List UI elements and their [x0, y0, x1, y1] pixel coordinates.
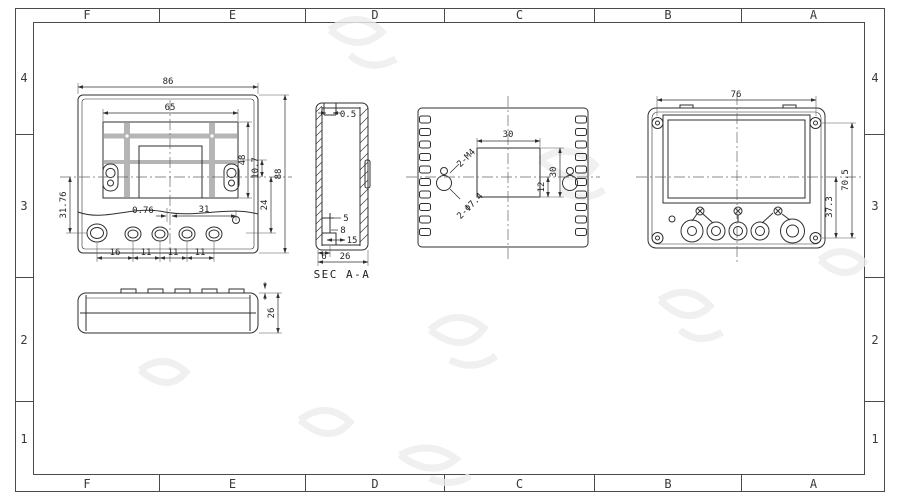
watermark: [140, 19, 864, 482]
dim-rear-screw-span-h: 70.5: [841, 169, 851, 191]
dim-front-gap-2: 11: [168, 248, 179, 258]
section-title: SEC A-A: [314, 268, 371, 281]
dim-section-lip: 0.5: [340, 110, 356, 120]
front-view: 86 65 48 10.7 88 24 31.76 0.76 31 16 11 …: [59, 77, 292, 262]
dim-front-center-offset: 10.7: [251, 157, 261, 179]
drawing-canvas: 86 65 48 10.7 88 24 31.76 0.76 31 16 11 …: [0, 0, 900, 500]
dim-rear-screw-span-w: 76: [731, 90, 742, 100]
dim-bottom-depth: 26: [267, 308, 277, 319]
dim-section-foot: 6: [321, 252, 326, 262]
dim-front-button-offset: 0.76: [132, 206, 154, 216]
dim-back-cutout-height: 30: [549, 167, 559, 178]
dim-back-cutout-offset: 12: [537, 182, 547, 193]
dim-front-gap-3: 11: [195, 248, 206, 258]
rear-view: 76 70.5 37.3: [636, 90, 862, 262]
dim-front-panel-width: 65: [165, 103, 176, 113]
dim-front-overall-width: 86: [163, 77, 174, 87]
dim-front-gap-large: 16: [110, 248, 121, 258]
dim-front-overall-height: 88: [274, 169, 284, 180]
dim-front-gap-1: 11: [141, 248, 152, 258]
dim-front-left-span: 31.76: [59, 191, 69, 218]
dim-section-depth: 26: [340, 252, 351, 262]
dim-back-cutout-width: 30: [503, 130, 514, 140]
dim-section-boss: 8: [340, 226, 345, 236]
dim-rear-lower-span: 37.3: [825, 196, 835, 218]
drawing-sheet: F E D C B A F E D C B A 4 3 2 1 4 3 2 1: [0, 0, 900, 500]
dim-front-display-height: 48: [238, 155, 248, 166]
dim-section-rib: 5: [343, 214, 348, 224]
section-view: 0.5 5 8 15 6 26 SEC A-A: [314, 103, 371, 281]
note-back-hole-dia: 2-Φ7.4: [456, 192, 486, 222]
bottom-view: 26: [78, 282, 282, 333]
note-back-screw-thread: 2-M4: [455, 147, 477, 169]
dim-front-button-span: 31: [199, 205, 210, 215]
dim-front-lower-height: 24: [260, 200, 270, 211]
dim-section-inset: 15: [347, 236, 358, 246]
